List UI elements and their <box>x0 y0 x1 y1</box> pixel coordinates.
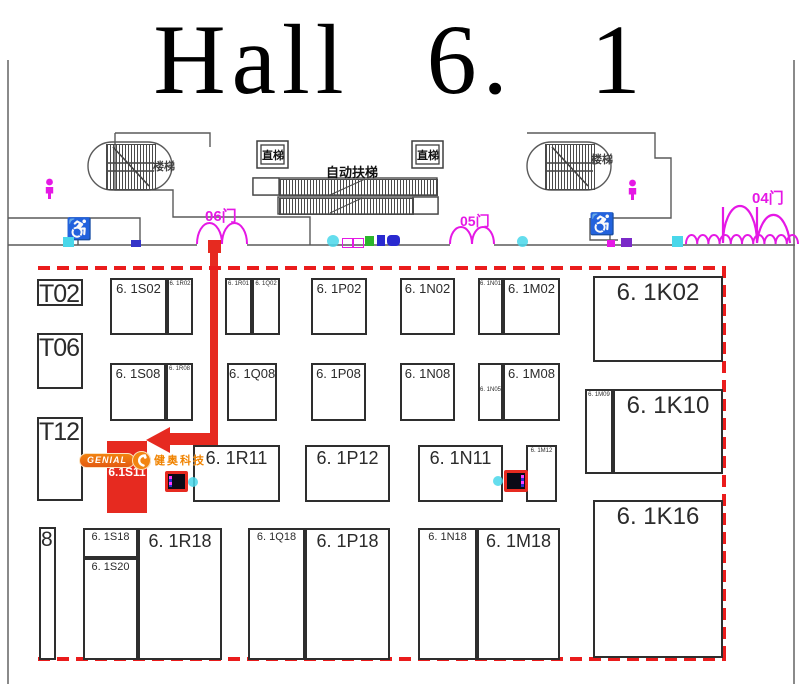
booth-label: 6. 1N18 <box>420 530 475 543</box>
booth-61s02: 6. 1S02 <box>110 278 167 335</box>
escalator-hatch-bottom <box>279 198 414 215</box>
booth-service-icon-2 <box>353 238 364 248</box>
booth-label: T02 <box>39 281 81 307</box>
booth-label: 6. 1P18 <box>307 530 388 552</box>
location-marker-right <box>504 470 528 492</box>
door-04-arcs <box>686 206 798 244</box>
hall-floorplan: Hall 6. 1 <box>0 0 800 684</box>
blue-service-icon-1 <box>377 235 385 246</box>
booth-label: 6. 1R08 <box>168 365 191 372</box>
booth-61m08: 6. 1M08 <box>503 363 560 421</box>
booth-label: 6. 1Q02 <box>254 280 278 287</box>
door-06-label: 06门 <box>205 205 237 226</box>
magenta-service-icon <box>607 240 615 247</box>
booth-label: 6. 1R01 <box>227 280 250 287</box>
booth-label: 6. 1N05 <box>480 365 501 393</box>
booth-61s08: 6. 1S08 <box>110 363 166 421</box>
door-05-label: 05门 <box>460 211 490 231</box>
booth-61p18: 6. 1P18 <box>305 528 390 660</box>
booth-61n02: 6. 1N02 <box>400 278 455 335</box>
booth-61q18: 6. 1Q18 <box>248 528 305 660</box>
wheelchair-icon-right: ♿ <box>589 213 615 237</box>
escalator-label: 自动扶梯 <box>326 162 378 181</box>
booth-61r02: 6. 1R02 <box>167 278 193 335</box>
booth-61m12: 6. 1M12 <box>526 445 557 502</box>
booth-label: 6. 1K10 <box>615 391 721 420</box>
booth-label: 6. 1Q18 <box>250 530 303 543</box>
booth-label: 6. 1Q08 <box>229 365 275 381</box>
info-icon <box>63 237 74 247</box>
booth-8: 8 <box>39 527 56 660</box>
booth-label: 6. 1P02 <box>313 280 365 296</box>
location-marker-left <box>165 471 188 492</box>
booth-label: 6. 1N01 <box>480 280 501 287</box>
booth-label: 6. 1M18 <box>479 530 558 552</box>
booth-service-icon-1 <box>342 238 353 248</box>
exhibitor-logo: GENIAL 健奥科技 <box>79 449 206 471</box>
info-icon-right <box>672 236 683 247</box>
booth-label: 6. 1S20 <box>85 560 136 573</box>
stairs-label-right: 楼梯 <box>591 151 613 167</box>
booth-label: 6. 1N08 <box>402 365 453 381</box>
booth-label: 6. 1M09 <box>587 391 611 398</box>
booth-61s20: 6. 1S20 <box>83 558 138 660</box>
booth-label: 6. 1R18 <box>140 530 220 552</box>
booth-label: 6. 1M02 <box>505 280 558 296</box>
booth-61n11: 6. 1N11 <box>418 445 503 502</box>
booth-61p12: 6. 1P12 <box>305 445 390 502</box>
stairs-hatch-right <box>545 144 595 190</box>
facility-dot-icon-2 <box>517 236 528 247</box>
booth-61m09: 6. 1M09 <box>585 389 613 474</box>
booth-61m18: 6. 1M18 <box>477 528 560 660</box>
booth-t12: T12 <box>37 417 83 501</box>
restroom-icon-left <box>46 179 53 199</box>
booth-label: 6. 1K16 <box>595 502 721 531</box>
booth-label: 6. 1R11 <box>195 447 278 469</box>
genial-logo-text: GENIAL <box>79 453 135 468</box>
service-icon <box>131 240 141 247</box>
restroom-icon-right <box>629 180 636 200</box>
stairs-label-left: 楼梯 <box>153 158 175 174</box>
exhibitor-company-name: 健奥科技 <box>154 452 206 468</box>
booth-label: 6. 1N11 <box>420 447 501 469</box>
booth-label: 6. 1S02 <box>112 280 165 296</box>
genial-logo-icon <box>132 451 151 470</box>
door-04-label: 04门 <box>752 187 784 208</box>
booth-61p08: 6. 1P08 <box>311 363 366 421</box>
booth-t06: T06 <box>37 333 83 389</box>
booth-label: 6. 1P08 <box>313 365 364 381</box>
booth-61s18: 6. 1S18 <box>83 528 138 558</box>
booth-label: 6. 1S08 <box>112 365 164 381</box>
booth-61r01: 6. 1R01 <box>225 278 252 335</box>
escalator-hatch-top <box>279 179 438 196</box>
marker-dot-right <box>493 476 503 486</box>
booth-label: 8 <box>41 529 54 551</box>
elevator-label-right: 直梯 <box>417 147 439 163</box>
booth-61n05: 6. 1N05 <box>478 363 503 421</box>
elevator-label-left: 直梯 <box>262 147 284 163</box>
booth-61n08: 6. 1N08 <box>400 363 455 421</box>
booth-61m02: 6. 1M02 <box>503 278 560 335</box>
booth-61q08: 6. 1Q08 <box>227 363 277 421</box>
purple-service-icon <box>621 238 632 247</box>
boundary-dashed-top <box>38 266 726 270</box>
booth-61r08: 6. 1R08 <box>166 363 193 421</box>
booth-label: 6. 1N02 <box>402 280 453 296</box>
booth-61q02: 6. 1Q02 <box>252 278 280 335</box>
door-06-arcs <box>197 223 247 244</box>
booth-61n18: 6. 1N18 <box>418 528 477 660</box>
booth-label: 6. 1P12 <box>307 447 388 469</box>
marker-dot-left <box>188 477 198 487</box>
booth-label: T06 <box>39 335 81 361</box>
booth-label: 6. 1R02 <box>169 280 191 287</box>
booth-61k02: 6. 1K02 <box>593 276 723 362</box>
green-service-icon <box>365 236 374 246</box>
booth-61n01: 6. 1N01 <box>478 278 503 335</box>
blue-service-icon-2 <box>387 235 400 246</box>
booth-61k10: 6. 1K10 <box>613 389 723 474</box>
booth-61k16: 6. 1K16 <box>593 500 723 658</box>
booth-61p02: 6. 1P02 <box>311 278 367 335</box>
booth-label: 6. 1S18 <box>85 530 136 543</box>
booth-61r11: 6. 1R11 <box>193 445 280 502</box>
route-arrow <box>146 240 221 453</box>
facility-dot-icon <box>327 235 339 247</box>
booth-label: T12 <box>39 419 81 445</box>
booth-t02: T02 <box>37 279 83 306</box>
booth-61r18: 6. 1R18 <box>138 528 222 660</box>
booth-label: 6. 1M08 <box>505 365 558 381</box>
booth-label: 6. 1K02 <box>595 278 721 307</box>
booth-label: 6. 1M12 <box>528 447 555 454</box>
stairs-hatch-left <box>106 144 156 190</box>
